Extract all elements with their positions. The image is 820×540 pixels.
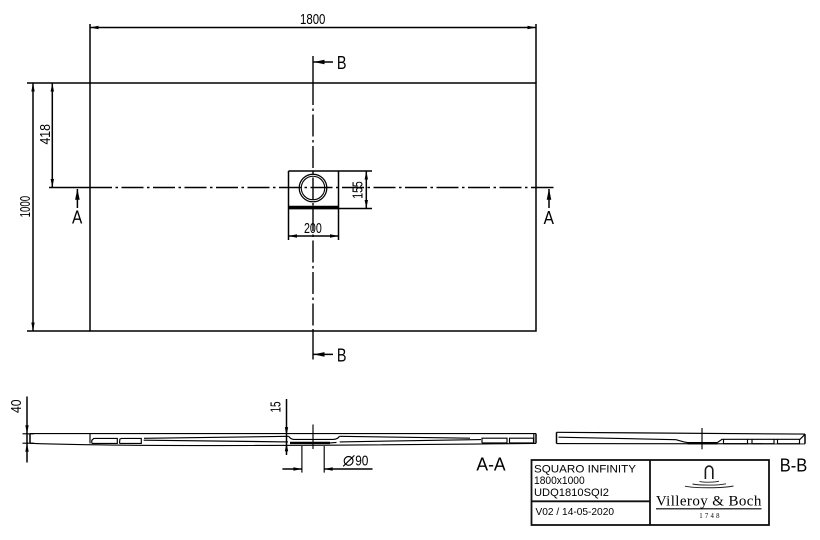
svg-text:UDQ1810SQI2: UDQ1810SQI2 [534,487,609,499]
svg-text:V02 / 14-05-2020: V02 / 14-05-2020 [536,507,615,518]
svg-text:155: 155 [350,181,366,199]
svg-text:SQUARO INFINITY: SQUARO INFINITY [534,463,636,475]
svg-text:B-B: B-B [780,454,808,475]
svg-text:200: 200 [304,221,322,237]
svg-text:1800: 1800 [300,12,325,28]
svg-text:1800x1000: 1800x1000 [534,475,585,487]
svg-text:A-A: A-A [476,453,506,474]
svg-text:B: B [337,52,347,73]
svg-text:1748: 1748 [699,513,721,520]
svg-text:418: 418 [38,124,54,145]
svg-text:1000: 1000 [18,196,34,218]
svg-text:A: A [544,207,555,228]
svg-text:90: 90 [355,453,368,469]
svg-text:Villeroy & Boch: Villeroy & Boch [656,494,762,510]
svg-text:B: B [337,345,347,366]
svg-text:15: 15 [269,402,285,413]
svg-text:40: 40 [9,400,25,414]
svg-text:A: A [72,207,83,228]
